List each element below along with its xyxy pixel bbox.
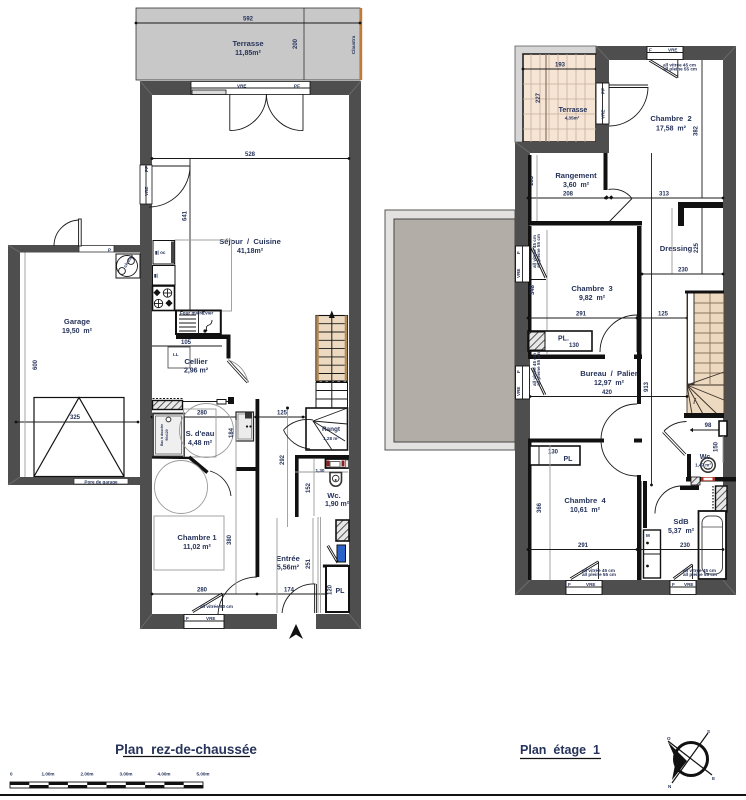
- svg-text:3,60 m²: 3,60 m²: [563, 182, 590, 189]
- svg-text:366: 366: [537, 502, 543, 513]
- svg-text:Bureau / Palier: Bureau / Palier: [580, 369, 637, 378]
- svg-text:Chambre 3: Chambre 3: [571, 284, 612, 293]
- svg-text:4.00m: 4.00m: [157, 772, 170, 777]
- svg-text:227: 227: [536, 92, 542, 103]
- svg-text:S. d'eau: S. d'eau: [186, 429, 215, 438]
- svg-text:17,58 m²: 17,58 m²: [656, 126, 687, 133]
- svg-text:Entrée: Entrée: [276, 554, 300, 563]
- svg-text:125: 125: [277, 411, 288, 417]
- svg-text:348: 348: [530, 284, 536, 295]
- svg-text:S: S: [707, 729, 710, 734]
- svg-text:Chambre 2: Chambre 2: [650, 114, 691, 123]
- svg-text:174: 174: [284, 588, 295, 594]
- svg-text:F: F: [516, 251, 521, 254]
- svg-text:Evier: Evier: [202, 311, 213, 316]
- svg-text:1,47 m²: 1,47 m²: [695, 463, 711, 468]
- svg-text:VRE: VRE: [206, 616, 215, 621]
- svg-text:5,56m²: 5,56m²: [277, 565, 300, 572]
- svg-text:PF: PF: [601, 88, 606, 94]
- svg-text:PL: PL: [336, 588, 346, 595]
- svg-text:all pleine 55 cm: all pleine 55 cm: [663, 67, 697, 72]
- svg-text:230: 230: [680, 543, 691, 549]
- svg-text:PL.: PL.: [558, 336, 569, 343]
- svg-text:Pore de garage: Pore de garage: [84, 480, 118, 485]
- svg-text:VRE: VRE: [586, 582, 595, 587]
- svg-text:Séjour / Cuisine: Séjour / Cuisine: [219, 237, 281, 246]
- svg-text:SdB: SdB: [673, 517, 689, 526]
- svg-text:PF: PF: [144, 166, 149, 172]
- svg-text:F: F: [186, 616, 189, 621]
- svg-text:Chambre 4: Chambre 4: [564, 496, 606, 505]
- svg-text:PF: PF: [294, 84, 300, 89]
- svg-text:120: 120: [328, 584, 334, 595]
- svg-text:19,50 m²: 19,50 m²: [62, 328, 93, 335]
- svg-text:all vitrée 90 cm: all vitrée 90 cm: [200, 604, 233, 609]
- svg-text:592: 592: [243, 17, 254, 23]
- svg-text:VRE: VRE: [684, 582, 693, 587]
- svg-text:11,85m²: 11,85m²: [235, 50, 261, 57]
- svg-text:528: 528: [245, 152, 256, 158]
- svg-text:Plan étage 1: Plan étage 1: [520, 743, 600, 757]
- svg-text:Chambre 1: Chambre 1: [177, 533, 217, 542]
- svg-text:F: F: [672, 582, 675, 587]
- svg-text:291: 291: [578, 543, 589, 549]
- svg-text:all pleine 55 cm: all pleine 55 cm: [683, 572, 717, 577]
- svg-text:9,82 m²: 9,82 m²: [579, 295, 606, 302]
- svg-text:641: 641: [183, 210, 189, 221]
- svg-text:12,97 m²: 12,97 m²: [594, 380, 625, 387]
- svg-text:193: 193: [555, 63, 566, 69]
- svg-text:225: 225: [694, 242, 700, 253]
- svg-text:Rangement: Rangement: [555, 171, 597, 180]
- svg-text:600: 600: [33, 359, 39, 370]
- svg-text:Plan rez-de-chaussée: Plan rez-de-chaussée: [115, 742, 257, 757]
- svg-text:Rangt: Rangt: [322, 426, 341, 433]
- svg-text:130: 130: [569, 343, 580, 349]
- svg-text:1,30: 1,30: [316, 468, 325, 473]
- svg-text:184: 184: [229, 427, 235, 438]
- svg-text:10,61 m²: 10,61 m²: [570, 507, 601, 514]
- svg-text:VRE: VRE: [601, 110, 606, 119]
- svg-text:VRE: VRE: [668, 48, 677, 53]
- svg-text:291: 291: [576, 312, 587, 318]
- svg-text:382: 382: [694, 125, 700, 136]
- svg-text:Terrasse: Terrasse: [232, 39, 263, 48]
- svg-text:all pleine 55 cm: all pleine 55 cm: [536, 352, 541, 386]
- svg-text:208: 208: [563, 192, 574, 198]
- svg-text:0: 0: [10, 772, 13, 777]
- svg-text:41,18m²: 41,18m²: [237, 248, 264, 255]
- svg-text:292: 292: [280, 454, 286, 465]
- svg-text:420: 420: [602, 390, 613, 396]
- svg-text:1.00m: 1.00m: [41, 772, 54, 777]
- svg-text:O: O: [667, 736, 671, 741]
- svg-text:150: 150: [714, 441, 720, 452]
- svg-text:Wc.: Wc.: [327, 491, 341, 500]
- svg-text:VRE: VRE: [144, 187, 149, 196]
- svg-text:LL: LL: [173, 352, 179, 357]
- svg-text:230: 230: [678, 268, 689, 274]
- svg-text:VRE: VRE: [516, 269, 521, 278]
- svg-text:2,96 m²: 2,96 m²: [184, 368, 209, 375]
- svg-text:1,28 m²: 1,28 m²: [323, 436, 339, 441]
- svg-text:P: P: [108, 248, 111, 253]
- svg-text:4,35m²: 4,35m²: [565, 116, 580, 121]
- svg-text:98: 98: [705, 423, 712, 429]
- svg-text:313: 313: [659, 192, 670, 198]
- svg-text:280: 280: [197, 588, 208, 594]
- svg-text:11,02 m²: 11,02 m²: [183, 544, 211, 551]
- svg-text:F: F: [568, 582, 571, 587]
- svg-text:200: 200: [293, 38, 299, 49]
- svg-text:Terrasse: Terrasse: [559, 107, 588, 114]
- svg-text:280: 280: [197, 411, 208, 417]
- svg-text:F: F: [649, 48, 652, 53]
- svg-text:90x120: 90x120: [165, 429, 169, 440]
- svg-text:VRE: VRE: [516, 387, 521, 396]
- svg-text:913: 913: [644, 381, 650, 392]
- svg-text:5,37 m²: 5,37 m²: [668, 528, 695, 535]
- svg-text:Claustra: Claustra: [351, 35, 356, 54]
- svg-text:2.00m: 2.00m: [80, 772, 93, 777]
- svg-text:152: 152: [306, 482, 312, 493]
- svg-text:VRE: VRE: [237, 84, 246, 89]
- svg-text:251: 251: [306, 558, 312, 569]
- svg-text:Dressing: Dressing: [660, 244, 693, 253]
- svg-text:E: E: [712, 776, 715, 781]
- svg-text:Garage: Garage: [64, 317, 90, 326]
- svg-text:Four micro: Four micro: [180, 311, 204, 316]
- svg-text:Cellier: Cellier: [184, 357, 207, 366]
- svg-text:all pleine 55 cm: all pleine 55 cm: [536, 234, 541, 268]
- svg-text:all pleine 55 cm: all pleine 55 cm: [582, 572, 616, 577]
- svg-text:Bac à douche: Bac à douche: [160, 424, 164, 446]
- svg-text:5.00m: 5.00m: [196, 772, 209, 777]
- svg-text:125: 125: [658, 312, 669, 318]
- svg-text:380: 380: [227, 534, 233, 545]
- svg-text:▮|: ▮|: [154, 273, 158, 278]
- svg-text:1,90 m²: 1,90 m²: [325, 501, 350, 508]
- svg-text:4,48 m²: 4,48 m²: [188, 440, 213, 447]
- svg-text:M: M: [646, 533, 650, 538]
- svg-text:▮| oc: ▮| oc: [155, 250, 166, 255]
- svg-text:F: F: [516, 370, 521, 373]
- svg-text:105: 105: [181, 340, 192, 346]
- svg-text:PL: PL: [564, 456, 574, 463]
- svg-text:3.00m: 3.00m: [119, 772, 132, 777]
- svg-text:Wc: Wc: [700, 454, 711, 461]
- svg-text:325: 325: [70, 415, 81, 421]
